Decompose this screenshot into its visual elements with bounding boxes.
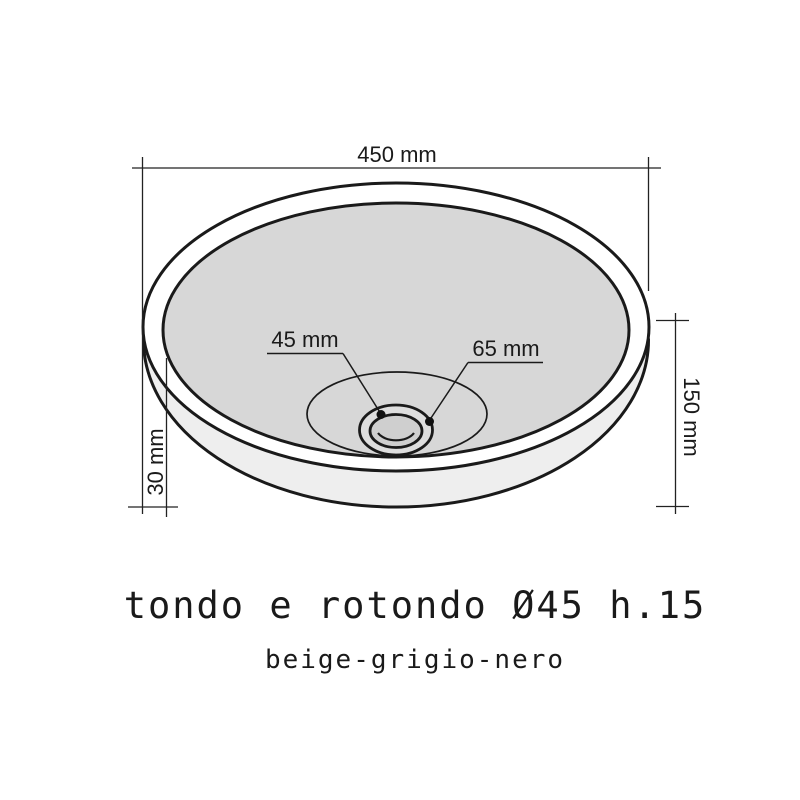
dimension-label-total-height: 150 mm	[679, 377, 704, 456]
leader-dot-65	[425, 417, 434, 426]
dimension-label-drain-ring: 65 mm	[472, 336, 539, 361]
leader-dot-45	[377, 410, 386, 419]
dimension-label-drain-hole: 45 mm	[271, 327, 338, 352]
product-title: tondo e rotondo Ø45 h.15	[124, 584, 707, 627]
sink-dimension-diagram: 450 mm 30 mm 150 mm 45 mm 65 mm tondo e …	[0, 0, 800, 800]
technical-drawing-canvas: 450 mm 30 mm 150 mm 45 mm 65 mm tondo e …	[0, 0, 800, 800]
dimension-label-top-diameter: 450 mm	[357, 142, 436, 167]
product-color-variants: beige-grigio-nero	[265, 645, 565, 675]
dimension-label-rim-lip: 30 mm	[143, 428, 168, 495]
drain-hole-ellipse	[370, 415, 422, 448]
